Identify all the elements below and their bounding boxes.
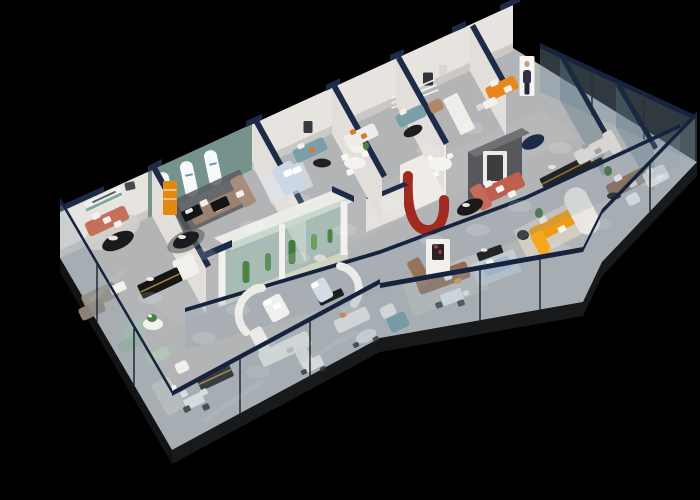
orange-display-cabinet <box>163 181 177 215</box>
table-tray <box>178 235 186 239</box>
staff-figure-head <box>524 61 529 67</box>
feature-wall-inner <box>487 155 503 181</box>
round-side-table <box>350 145 364 153</box>
table-tray <box>462 203 470 207</box>
ceiling-light-spot <box>226 304 250 316</box>
cactus <box>311 234 317 250</box>
ceiling-light-spot <box>508 200 532 212</box>
ceiling-light-spot <box>460 122 484 134</box>
ceiling-light-spot <box>240 220 264 232</box>
flower-bloom <box>148 315 152 318</box>
showroom-render-stage <box>0 0 700 500</box>
wall-art-4 <box>439 65 447 75</box>
ceiling-light-spot <box>466 224 490 236</box>
staff-figure-body <box>523 70 531 84</box>
logo-mark-red <box>439 250 442 254</box>
ceiling-light-spot <box>288 194 312 206</box>
table-tray <box>146 277 154 281</box>
ceiling-light-spot <box>548 142 572 154</box>
terrarium-rock <box>314 255 326 262</box>
ceiling-light-spot <box>286 252 310 264</box>
ceiling-light-spot <box>378 198 402 210</box>
logo-panel <box>432 244 444 260</box>
showroom-floorplan-scene <box>0 0 700 500</box>
cactus <box>328 229 333 243</box>
ceiling-light-spot <box>333 224 357 236</box>
cactus <box>265 253 271 271</box>
black-round-table <box>313 159 331 168</box>
media-console-tray <box>548 165 556 169</box>
wall-art-2 <box>304 121 313 133</box>
terrarium-pillar <box>279 224 285 280</box>
staff-figure-legs <box>525 84 530 95</box>
ceiling-light-spot <box>416 144 440 156</box>
ceiling-light-spot <box>420 234 444 246</box>
cactus <box>243 261 250 283</box>
table-tray <box>481 248 488 252</box>
table-tray <box>108 236 118 241</box>
ceiling-light-spot <box>192 248 216 260</box>
ceiling-light-spot <box>192 332 216 344</box>
plant-small <box>363 142 369 150</box>
ceiling-light-spot <box>138 292 162 304</box>
logo-mark-red <box>434 246 438 249</box>
